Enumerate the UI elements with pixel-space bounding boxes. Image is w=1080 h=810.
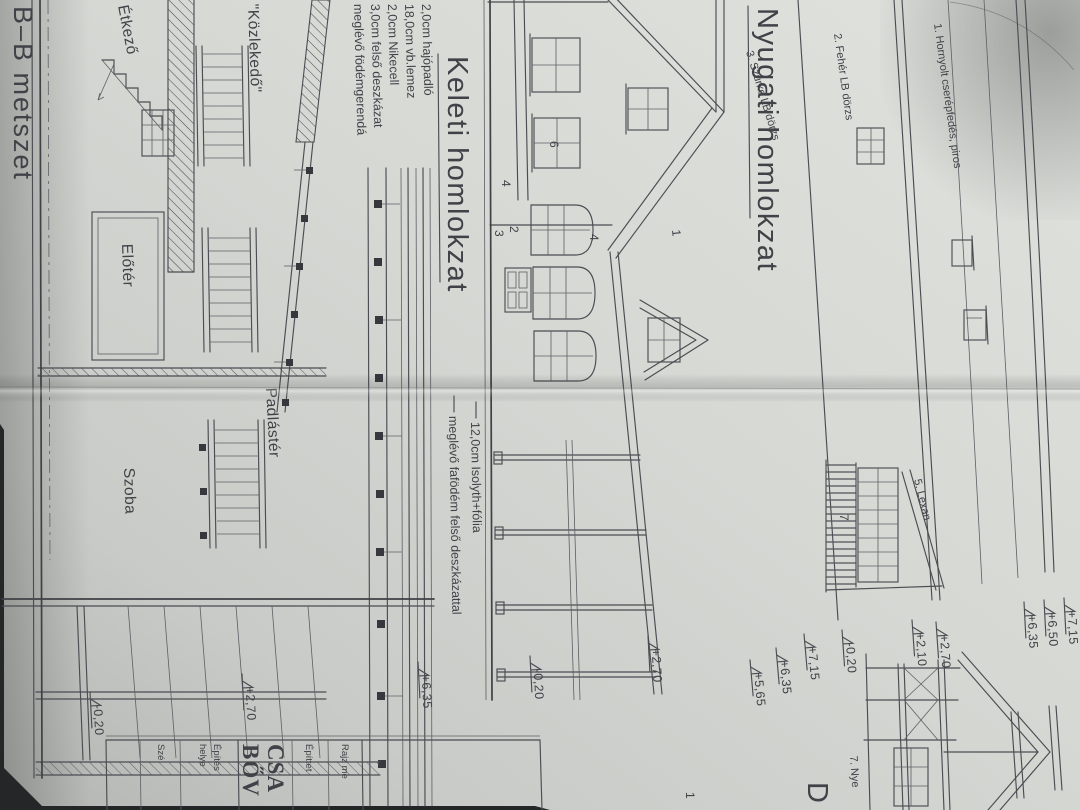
ref-number-3: 3 (492, 230, 506, 237)
ref-number-6: 6 (547, 141, 561, 148)
letter-d: D (801, 782, 833, 804)
svg-text:+2,70: +2,70 (243, 686, 259, 721)
titleblock-client-row: Építtet (303, 744, 314, 772)
iso-note-line1: 12,0cm Isolyth+fólia (468, 422, 484, 533)
svg-text:+7,15: +7,15 (1065, 610, 1080, 645)
svg-text:+6,35: +6,35 (1025, 614, 1041, 649)
ref-number-4: 4 (499, 180, 513, 187)
blueprint-photo: 1. Hornyolt cserépfedés, piros 2. Fehér … (0, 0, 1080, 810)
hatched-slab (168, 0, 194, 272)
ref-number-7: 7 (837, 514, 851, 521)
svg-text:+6,35: +6,35 (419, 674, 435, 709)
svg-text:+5,65: +5,65 (751, 672, 768, 707)
ref-number-4: 4 (587, 234, 601, 241)
porch-plank-band (826, 463, 856, 587)
layer-note: 18,0cm vb.lemez (402, 4, 418, 99)
titleblock-site-row1: Építés (211, 744, 222, 771)
section-title: B–B metszet (8, 6, 38, 181)
porch-note-7nye: 7. Nye (847, 755, 861, 788)
room-label-eloter: Előtér (118, 244, 137, 288)
room-label-kozlekedo: "Közlekedő" (244, 4, 264, 93)
titleblock-site-row2: helye (197, 744, 208, 767)
titleblock-drawing-row: Rajz me (339, 744, 350, 779)
svg-text:+2,10: +2,10 (913, 632, 929, 667)
svg-text:+6,50: +6,50 (1045, 612, 1061, 647)
corner-curl-shadow (880, 0, 1080, 220)
east-title-group: Keleti homlokzat (438, 54, 473, 293)
svg-text:+7,15: +7,15 (805, 646, 822, 681)
titleblock-project-line1: CSA (263, 744, 288, 793)
titleblock-project-line2: BŐV (238, 744, 264, 797)
svg-text:+6,35: +6,35 (777, 660, 794, 695)
folded-drawing-sheet: 1. Hornyolt cserépfedés, piros 2. Fehér … (0, 0, 1080, 810)
ref-number-1: 1 (683, 792, 697, 799)
west-facade-title: Nyugati homlokzat (751, 8, 783, 272)
svg-text:-0,20: -0,20 (91, 704, 107, 736)
east-facade-title: Keleti homlokzat (441, 56, 473, 293)
layer-note: 2,0cm hajópadló (419, 4, 435, 96)
svg-text:+2,70: +2,70 (937, 634, 953, 669)
room-label-szoba: Szoba (120, 468, 139, 515)
titleblock-bottom-row: Szé (155, 744, 166, 760)
svg-text:+2,70: +2,70 (649, 648, 665, 683)
svg-text:-0,20: -0,20 (843, 642, 859, 674)
svg-text:-0,20: -0,20 (531, 668, 547, 700)
layer-note: 2,0cm Nikecell (385, 4, 401, 86)
ref-number-2: 2 (507, 226, 521, 233)
